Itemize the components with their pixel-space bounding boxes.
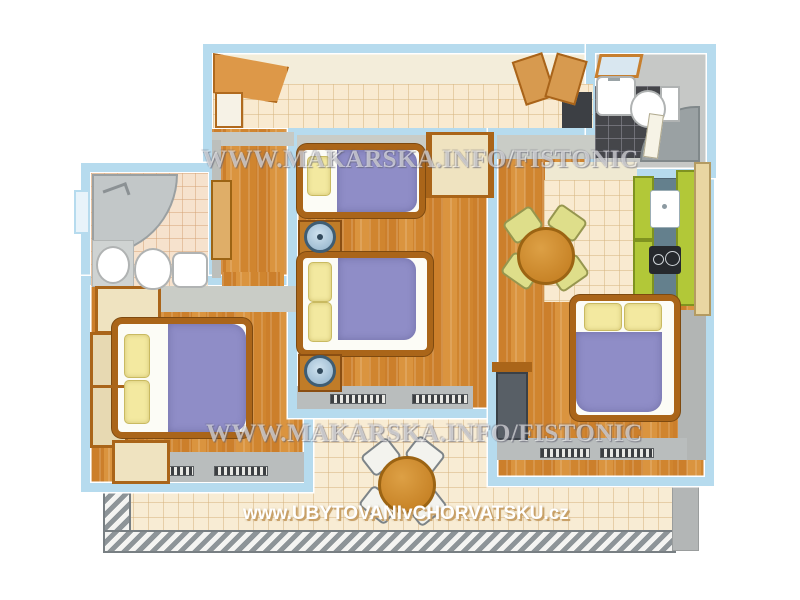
bed-cover	[338, 258, 416, 340]
bathroom-left-window	[74, 190, 90, 234]
stove-burner	[665, 251, 680, 266]
sink-faucet-icon	[608, 78, 620, 81]
kitchen-tall-cabinet	[694, 162, 711, 316]
bed-cover	[576, 332, 662, 412]
corridor-wall-shade	[212, 132, 294, 146]
dining-table	[517, 227, 575, 285]
bathroom-mirror	[594, 54, 643, 78]
bidet	[172, 252, 208, 288]
kitchen-sink-drain	[662, 204, 667, 209]
terrace-railing-bottom	[103, 530, 676, 553]
sliding-door-track	[412, 394, 468, 404]
bed-pillow	[624, 303, 662, 331]
sliding-door-track	[600, 448, 654, 458]
bed-cover	[168, 324, 246, 432]
bed-pillow	[124, 380, 150, 424]
tv-stand-top	[492, 362, 532, 372]
watermark-bottom: www.UBYTOVANIvCHORVATSKU.cz	[243, 503, 569, 525]
cabinet	[112, 440, 170, 484]
sliding-door-track	[540, 448, 590, 458]
bedroom-left-wall-shade	[160, 286, 304, 312]
bed-pillow	[308, 262, 332, 302]
corridor-shelf	[211, 180, 232, 260]
stove-burner	[653, 254, 664, 265]
hallway-wardrobe-front	[215, 92, 243, 128]
kitchen-sink	[650, 190, 680, 228]
terrace-side-wall	[672, 486, 699, 551]
sliding-door-track	[330, 394, 386, 404]
apartment-floor-plan: WWW.MAKARSKA.INFO/FISTONIC WWW.MAKARSKA.…	[0, 0, 800, 600]
sink	[96, 246, 130, 284]
toilet	[134, 248, 172, 290]
shelf-divider	[92, 385, 124, 388]
bed-pillow	[584, 303, 622, 331]
sliding-door-track	[214, 466, 268, 476]
table-lamp	[304, 221, 336, 253]
watermark-top: WWW.MAKARSKA.INFO/FISTONIC	[202, 146, 639, 174]
bed-pillow	[124, 334, 150, 378]
bed-pillow	[308, 302, 332, 342]
table-lamp	[304, 355, 336, 387]
watermark-middle: WWW.MAKARSKA.INFO/FISTONIC	[206, 420, 643, 448]
